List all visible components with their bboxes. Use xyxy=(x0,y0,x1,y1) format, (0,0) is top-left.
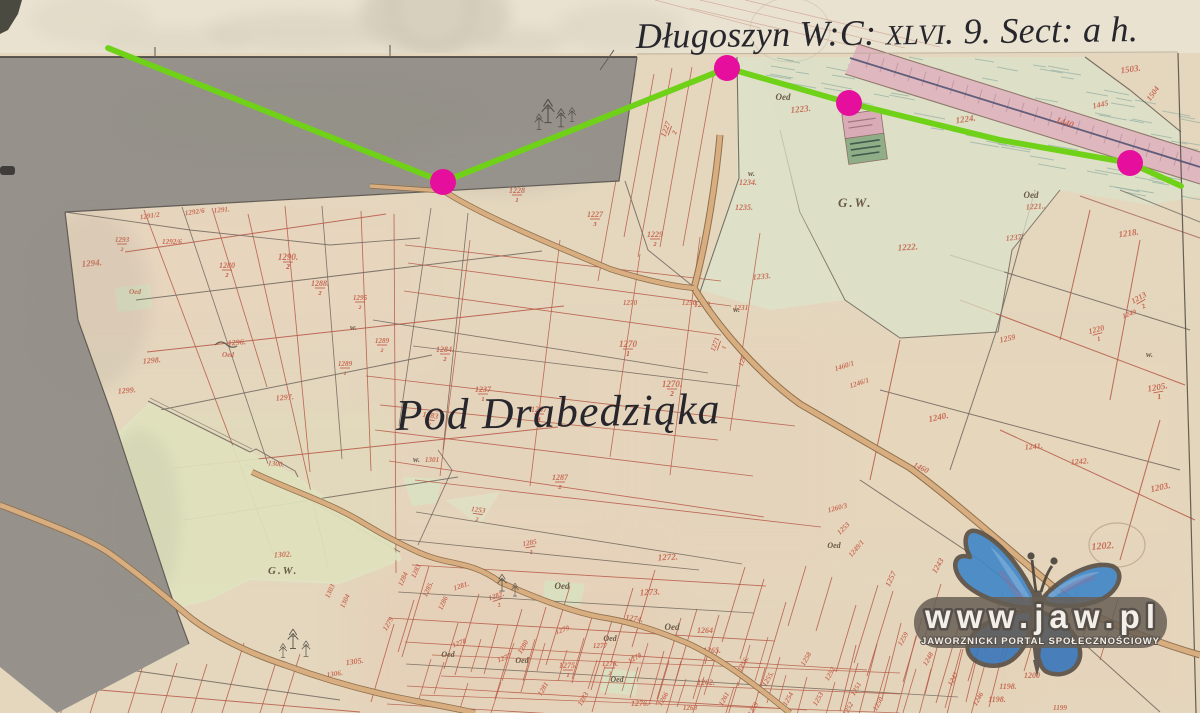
svg-text:Pod Drabedziąka: Pod Drabedziąka xyxy=(394,384,720,440)
svg-text:www.jaw.pl: www.jaw.pl xyxy=(924,598,1155,635)
svg-text:JAWORZNICKI PORTAL SPOŁECZNOŚC: JAWORZNICKI PORTAL SPOŁECZNOŚCIOWY xyxy=(921,635,1160,647)
